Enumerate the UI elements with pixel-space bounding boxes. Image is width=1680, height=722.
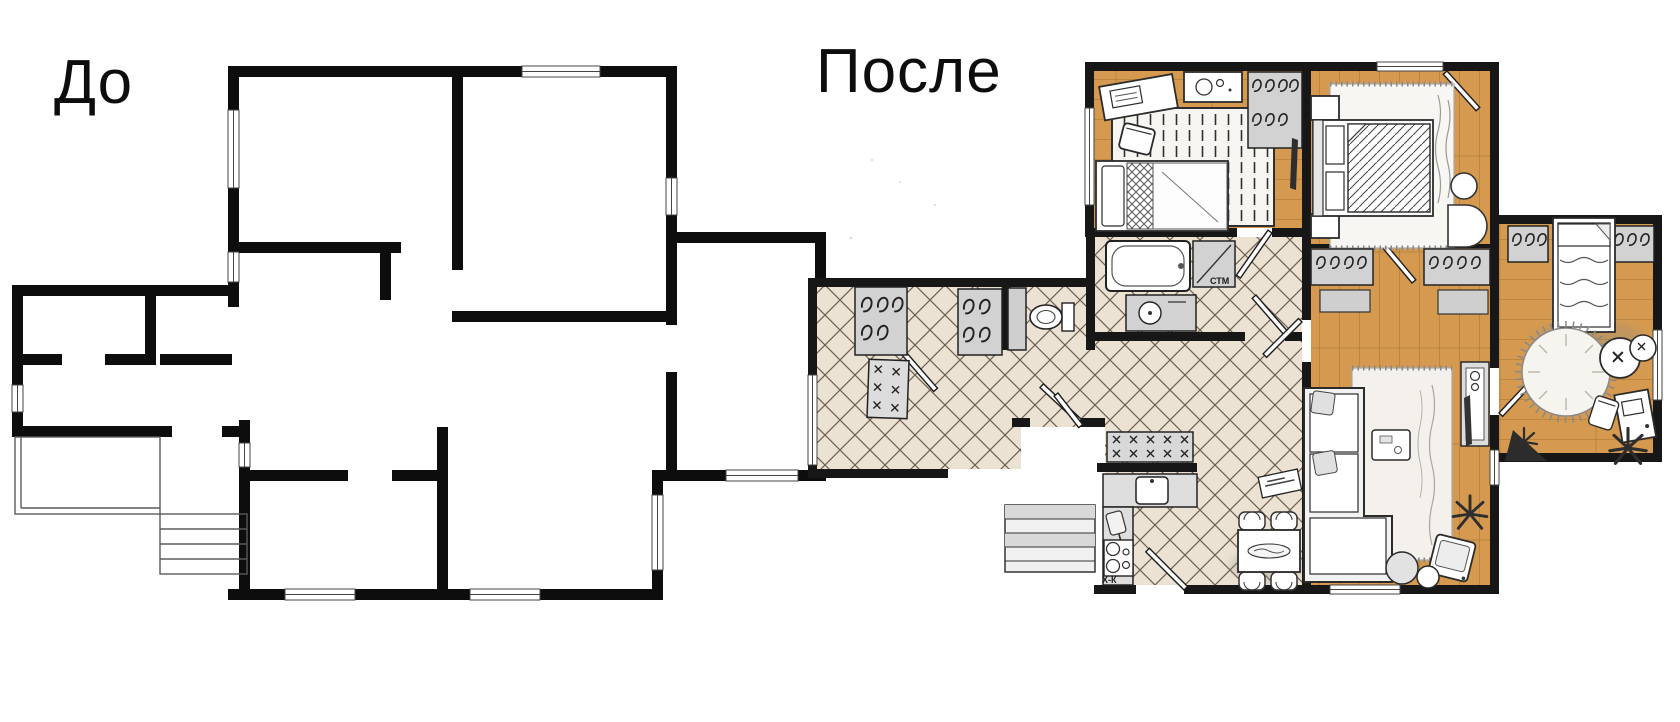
- headboard: [1313, 120, 1323, 216]
- pillow: [1102, 166, 1124, 226]
- fridge-label: Х-К: [1102, 575, 1117, 585]
- shoe-bench: [867, 359, 909, 418]
- round-basin: [1451, 173, 1477, 199]
- kid-desk: [1614, 389, 1656, 442]
- wardrobe-rack: [1424, 249, 1490, 285]
- sofa-pillow: [1311, 391, 1336, 416]
- clothes-rack: [1610, 226, 1654, 262]
- floor-plans-canvas: До: [0, 0, 1680, 722]
- pillow: [1326, 126, 1344, 164]
- tv-console: [1461, 362, 1489, 446]
- wardrobe-rack: [1311, 249, 1373, 285]
- pouf: [1417, 566, 1439, 588]
- bathroom-vanity: [1126, 295, 1196, 331]
- entry-steps: [1005, 505, 1095, 572]
- pillow: [1326, 172, 1344, 210]
- nightstand: [1311, 214, 1339, 238]
- bathtub: [1106, 241, 1190, 291]
- before-walls: [12, 66, 826, 600]
- washing-machine-label: СТМ: [1210, 276, 1229, 286]
- radiator-bench: [1107, 432, 1193, 462]
- cooktop: [1104, 540, 1133, 576]
- nightstand: [1311, 96, 1339, 120]
- dresser-with-mirror: [1184, 72, 1242, 102]
- bed-runner: [1127, 163, 1153, 229]
- window: [522, 66, 600, 77]
- toilet: [1030, 303, 1074, 331]
- coat-rack: [855, 287, 907, 355]
- pouf: [1386, 552, 1418, 584]
- sofa-pillow: [1312, 450, 1337, 475]
- remote: [1380, 436, 1392, 443]
- duvet: [1348, 124, 1430, 212]
- shelf: [1320, 290, 1370, 312]
- washing-machine: СТМ: [1193, 241, 1235, 287]
- kid-bed: [1553, 218, 1615, 332]
- clothes-rack: [1248, 72, 1302, 148]
- after-plan-title: После: [816, 37, 1002, 106]
- before-plan-title: До: [54, 48, 133, 117]
- single-bed: [1096, 161, 1228, 231]
- before-plan: До: [12, 48, 826, 600]
- coffee-table: [1372, 430, 1410, 460]
- clothes-rack: [1508, 226, 1548, 262]
- paper-specks: [850, 159, 937, 240]
- after-plan: После: [808, 37, 1662, 594]
- corner-sink-unit: [1448, 205, 1487, 247]
- before-stairs: [160, 514, 247, 574]
- before-terrace: [15, 437, 160, 514]
- wc-cabinet: [1008, 288, 1026, 350]
- double-bed: [1313, 120, 1433, 216]
- coat-rack: [958, 289, 1002, 355]
- before-after-floorplan-page: До: [0, 0, 1680, 722]
- bedroom1: [1096, 72, 1302, 231]
- shelf: [1438, 290, 1488, 314]
